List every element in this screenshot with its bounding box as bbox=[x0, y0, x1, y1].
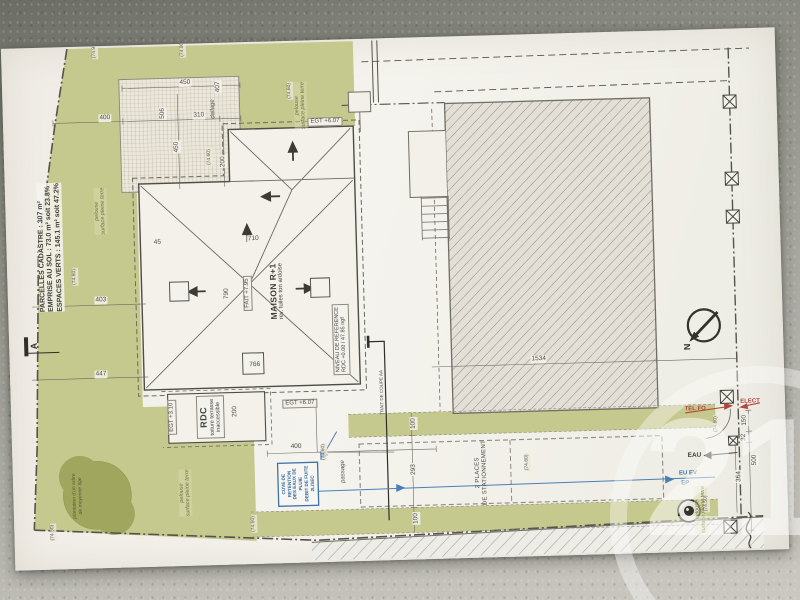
pelouse-label-3: pelousesurface pleine terre bbox=[293, 82, 307, 129]
north-label: N bbox=[682, 343, 693, 350]
pelouse-label-1: pelousesurface pleine terre bbox=[93, 187, 107, 234]
dim-506: 506 bbox=[159, 107, 167, 120]
cuve-label: CUVE DERETENTIONDES EAUX DEPLUIEDEBIT DE… bbox=[280, 465, 315, 502]
dim-100-a: 100 bbox=[409, 417, 417, 430]
passage-label: passage bbox=[340, 460, 348, 483]
elev-tag-11: (74.60) bbox=[713, 415, 719, 433]
annex-egt-tag: EGT +3.10 bbox=[167, 400, 177, 435]
annex-rdc-tag: RDCtoiture terrasseinaccessible bbox=[196, 395, 225, 438]
eu-ev-label: EU EV bbox=[679, 470, 697, 478]
coupe-label: TRAIT DE COUPE AA bbox=[378, 370, 385, 415]
egt-top-tag: EGT +6.07 bbox=[307, 117, 342, 127]
niveau-ref-tag: NIVEAU DE REFERENCERDC +0.00 / 47.85 ngf bbox=[332, 304, 351, 376]
egt-mid-tag: EGT +6.07 bbox=[282, 399, 317, 409]
dim-766: 766 bbox=[248, 361, 261, 369]
dim-310: 310 bbox=[192, 111, 205, 119]
elev-tag-3: (74.60) bbox=[287, 82, 293, 100]
elect-label: ELECT bbox=[740, 398, 760, 406]
site-plan-paper: PARCELLES CADASTRE : 307 m²EMPRISE AU SO… bbox=[1, 27, 789, 570]
dim-450-top: 450 bbox=[178, 79, 191, 87]
elev-tag-2: (74.90) bbox=[180, 40, 186, 58]
elev-tag-6: (74.60) bbox=[321, 443, 327, 461]
elev-tag-4: (74.60) bbox=[72, 268, 78, 286]
dim-450-side: 450 bbox=[173, 141, 181, 154]
dim-150: 150 bbox=[741, 414, 749, 427]
tel-fo-label: TEL FO bbox=[684, 406, 705, 414]
dim-407: 407 bbox=[214, 80, 222, 93]
dim-710: 710 bbox=[247, 235, 260, 243]
plan-labels: PARCELLES CADASTRE : 307 m²EMPRISE AU SO… bbox=[1, 27, 789, 570]
dim-293: 293 bbox=[410, 463, 418, 476]
elev-tag-1: (74.90) bbox=[92, 41, 98, 59]
dim-200-dallage: 200 bbox=[219, 155, 227, 168]
dim-500: 500 bbox=[751, 453, 759, 466]
dim-364: 364 bbox=[735, 470, 743, 483]
dim-400-drive: 400 bbox=[290, 443, 303, 451]
annex-dim-200: 200 bbox=[231, 405, 239, 418]
pelouse-label-2: pelousesurface pleine terre bbox=[178, 469, 192, 516]
dim-100-b: 100 bbox=[412, 512, 420, 525]
tree-label: plantation d'un arbrede moyenne tige bbox=[72, 473, 85, 519]
desk-background: PARCELLES CADASTRE : 307 m²EMPRISE AU SO… bbox=[0, 0, 800, 600]
elev-tag-7: (74.60) bbox=[524, 453, 530, 471]
dim-790: 790 bbox=[223, 287, 231, 300]
parking-label: 2 PLACESDE STATIONNEMENT bbox=[474, 440, 490, 506]
dallage-label: dallage bbox=[210, 99, 218, 119]
cut-a-label: A bbox=[29, 343, 40, 350]
fait-tag: FAIT +7.95 bbox=[243, 275, 253, 311]
dim-32: 32 bbox=[740, 433, 748, 442]
dim-447: 447 bbox=[94, 370, 107, 378]
elev-tag-10: (74.50) bbox=[704, 494, 710, 512]
eau-label: EAU bbox=[688, 452, 702, 460]
dim-1534: 1534 bbox=[530, 355, 547, 363]
house-title: MAISON R+1rev. tuiles ton ardoise bbox=[267, 263, 286, 320]
dim-400-left: 400 bbox=[98, 114, 111, 122]
dim-403: 403 bbox=[94, 296, 107, 304]
ep-label: EP bbox=[681, 480, 689, 487]
elev-tag-9: (74.50) bbox=[251, 515, 257, 533]
elev-tag-5: (74.60) bbox=[207, 148, 213, 166]
legend-block: PARCELLES CADASTRE : 307 m²EMPRISE AU SO… bbox=[36, 183, 64, 312]
elev-tag-8: (74.50) bbox=[50, 524, 56, 542]
dim-45: 45 bbox=[153, 239, 162, 247]
